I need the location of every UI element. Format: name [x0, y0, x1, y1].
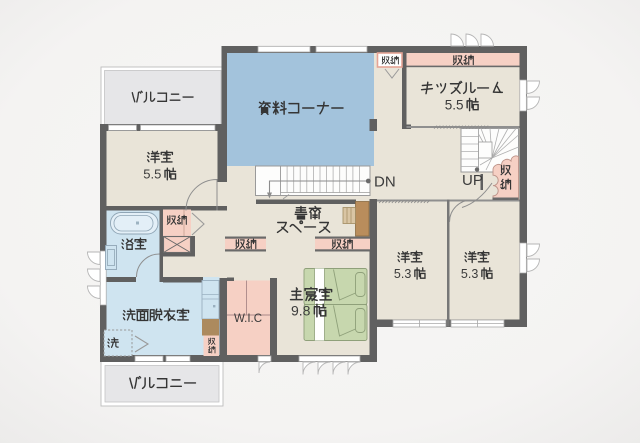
svg-text:9.8: 9.8 [291, 303, 311, 319]
svg-text:5.3: 5.3 [461, 267, 478, 281]
svg-text:W.I.C: W.I.C [234, 313, 262, 325]
svg-text:5.5: 5.5 [445, 97, 464, 112]
svg-text:5.3: 5.3 [394, 267, 411, 281]
svg-text:UP: UP [462, 172, 483, 189]
svg-text:5.5: 5.5 [143, 167, 161, 182]
svg-text:DN: DN [374, 174, 396, 191]
